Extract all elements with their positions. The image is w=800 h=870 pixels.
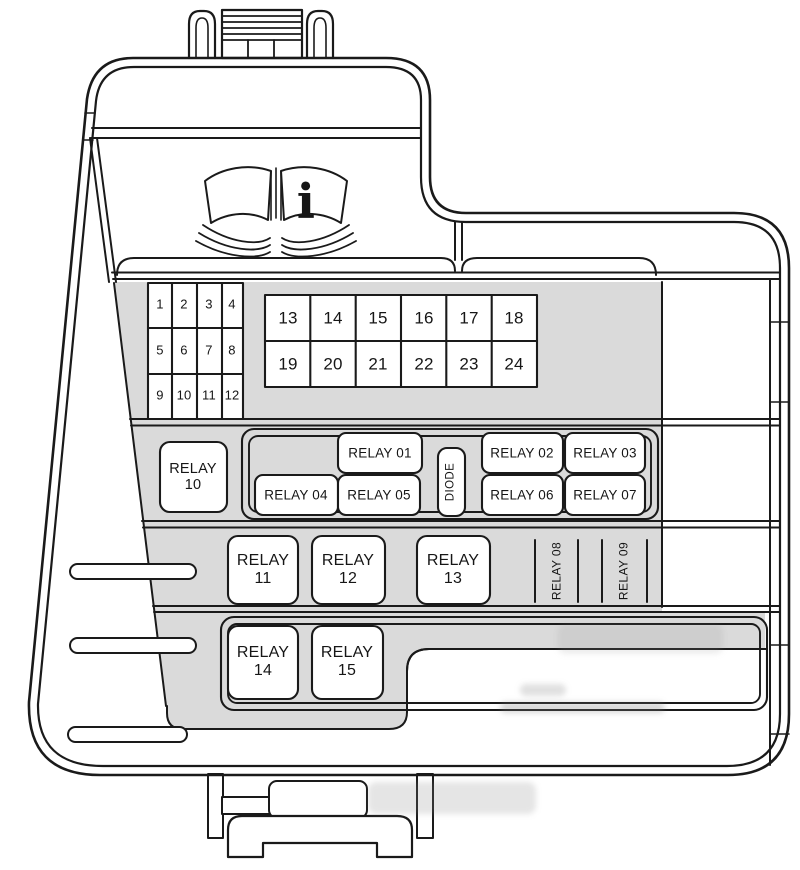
- fuse-22: 22: [414, 354, 433, 373]
- fuse-19: 19: [278, 354, 297, 373]
- maxi-fuse-grid: [265, 295, 537, 387]
- relay-05-label: RELAY 05: [347, 487, 410, 502]
- relay-07-label: RELAY 07: [573, 487, 636, 502]
- fuse-11: 11: [202, 389, 216, 404]
- fuse-2: 2: [180, 298, 187, 313]
- fuse-7: 7: [205, 344, 212, 359]
- relay-11-label: RELAY 11: [237, 552, 289, 588]
- fuse-9: 9: [156, 389, 163, 404]
- fuse-21: 21: [368, 354, 387, 373]
- relay-08-label: RELAY 08: [550, 542, 563, 600]
- top-latch: [189, 10, 333, 58]
- relay-02-label: RELAY 02: [490, 445, 553, 460]
- fuse-16: 16: [414, 308, 433, 327]
- fuse-3: 3: [205, 298, 212, 313]
- bottom-latch: [208, 774, 433, 857]
- fuse-1: 1: [156, 298, 163, 313]
- info-symbol: i: [297, 178, 315, 226]
- fuse-24: 24: [504, 354, 523, 373]
- relay-10-label: RELAY 10: [169, 461, 216, 493]
- fuse-4: 4: [228, 298, 235, 313]
- fuse-10: 10: [177, 389, 192, 404]
- fuse-5: 5: [156, 344, 163, 359]
- fuse-13: 13: [278, 308, 297, 327]
- fuse-17: 17: [459, 308, 478, 327]
- relay-06-label: RELAY 06: [490, 487, 553, 502]
- fuse-14: 14: [323, 308, 342, 327]
- fuse-box-line-art: [0, 0, 800, 870]
- fuse-18: 18: [504, 308, 523, 327]
- relay-04-label: RELAY 04: [264, 487, 327, 502]
- fuse-12: 12: [225, 389, 240, 404]
- relay-14-label: RELAY 14: [237, 644, 289, 680]
- relay-09-label: RELAY 09: [617, 542, 630, 600]
- fuse-box-diagram: i 1 2 3 4 5 6 7 8 9 10 11 12 13 14 15 16…: [0, 0, 800, 870]
- fuse-20: 20: [323, 354, 342, 373]
- diode-label: DIODE: [445, 463, 458, 501]
- fuse-15: 15: [368, 308, 387, 327]
- relay-01-label: RELAY 01: [348, 445, 411, 460]
- fuse-6: 6: [180, 344, 187, 359]
- relay-15-label: RELAY 15: [321, 644, 373, 680]
- owners-manual-book-icon: [196, 167, 356, 256]
- relay-12-label: RELAY 12: [322, 552, 374, 588]
- fuse-8: 8: [228, 344, 235, 359]
- fuse-23: 23: [459, 354, 478, 373]
- relay-13-label: RELAY 13: [427, 552, 479, 588]
- relay-03-label: RELAY 03: [573, 445, 636, 460]
